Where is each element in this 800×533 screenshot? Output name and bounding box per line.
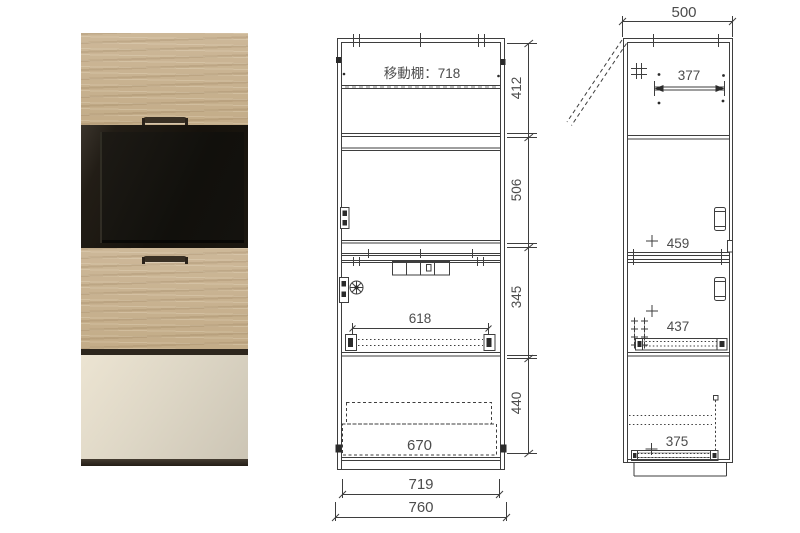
shelf-depth-dimension: 377 bbox=[654, 68, 725, 96]
dim-377-label: 377 bbox=[678, 68, 701, 83]
front-view-drawing: 移動棚：718 bbox=[332, 33, 537, 521]
side-view-drawing: 500 bbox=[567, 4, 736, 476]
upper-door-section: 459 bbox=[646, 208, 733, 253]
vent-grille-icon bbox=[393, 262, 450, 276]
dim-500-label: 500 bbox=[671, 4, 696, 21]
upper-hinge-icon bbox=[341, 208, 350, 229]
dim-719-label: 719 bbox=[408, 476, 433, 493]
dim-670-label: 670 bbox=[407, 437, 432, 454]
shelf-pin-holes-icon bbox=[631, 63, 647, 79]
lower-hinge-icon bbox=[340, 278, 364, 303]
movable-shelf-label: 移動棚：718 bbox=[384, 66, 461, 81]
slide-rail-icon bbox=[346, 335, 496, 351]
dim-375-label: 375 bbox=[666, 434, 689, 449]
dim-345-label: 345 bbox=[509, 286, 524, 309]
dim-437-label: 437 bbox=[667, 319, 690, 334]
dim-760-label: 760 bbox=[408, 499, 433, 516]
technical-drawing: 移動棚：718 bbox=[0, 0, 800, 533]
front-height-dimensions: 412 506 345 440 bbox=[507, 40, 537, 457]
dim-440-label: 440 bbox=[509, 392, 524, 415]
side-depth-dimension: 500 bbox=[619, 4, 736, 37]
cabinet-dimension-sheet: { "colors": { "background": "#ffffff", "… bbox=[0, 0, 800, 533]
dim-412-label: 412 bbox=[509, 77, 524, 100]
dim-459-label: 459 bbox=[667, 236, 690, 251]
front-width-dimensions: 719 760 bbox=[332, 476, 510, 521]
drawer-section: 375 bbox=[629, 396, 718, 461]
dim-618-label: 618 bbox=[409, 311, 432, 326]
flap-door-swing-lines bbox=[567, 40, 627, 126]
movable-shelf bbox=[341, 86, 501, 89]
dim-506-label: 506 bbox=[509, 179, 524, 202]
av-section: 437 bbox=[631, 278, 727, 351]
